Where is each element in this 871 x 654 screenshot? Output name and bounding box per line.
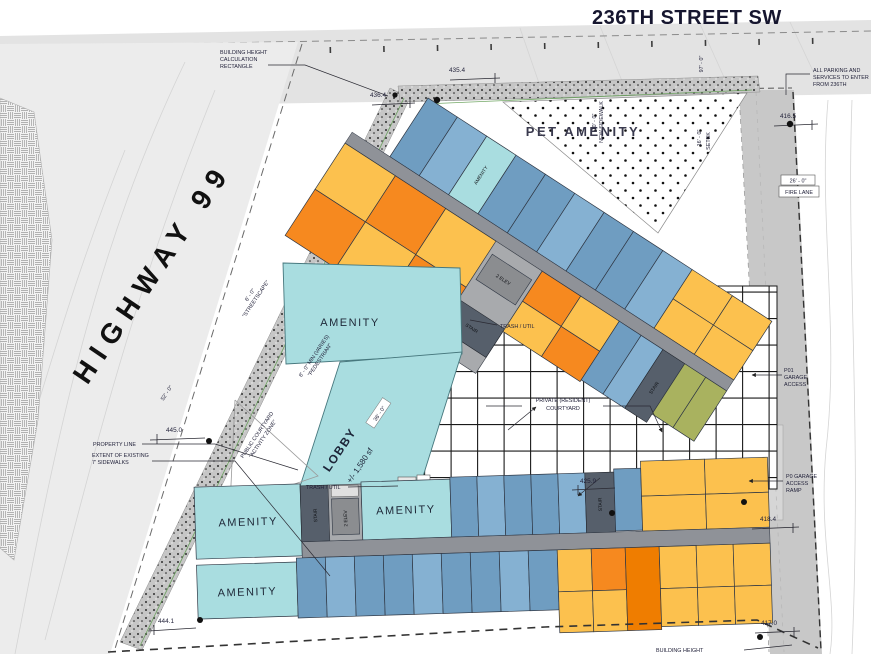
svg-text:FROM 236TH: FROM 236TH <box>813 82 847 88</box>
unit <box>450 476 479 537</box>
amenity-mid-area <box>283 263 462 364</box>
svg-text:EXTENT OF EXISTING: EXTENT OF EXISTING <box>92 453 149 459</box>
svg-text:SERVICES TO ENTER: SERVICES TO ENTER <box>813 75 869 81</box>
unit <box>625 547 662 631</box>
svg-text:BUILDING HEIGHT: BUILDING HEIGHT <box>656 648 704 654</box>
svg-text:7' SIDEWALKS: 7' SIDEWALKS <box>92 460 129 466</box>
unit <box>696 544 734 587</box>
street-title: 236TH STREET SW <box>592 7 782 29</box>
svg-text:PRIVATE (RESIDENT): PRIVATE (RESIDENT) <box>536 398 591 404</box>
dim-setback: 16' - 0" <box>697 130 703 147</box>
svg-text:436.4: 436.4 <box>370 92 386 99</box>
unit <box>531 474 560 535</box>
unit <box>706 492 770 529</box>
svg-text:BUILDING HEIGHT: BUILDING HEIGHT <box>220 50 268 56</box>
unit <box>441 553 472 614</box>
amenity-label: AMENITY <box>320 317 379 329</box>
svg-text:TRASH / UTIL: TRASH / UTIL <box>306 485 340 491</box>
svg-text:RAMP: RAMP <box>786 488 802 494</box>
svg-text:P0 GARAGE: P0 GARAGE <box>786 474 818 480</box>
svg-text:417.0: 417.0 <box>761 620 777 627</box>
svg-text:444.1: 444.1 <box>158 618 174 625</box>
site-plan-page: AMENITY 2 ELEV STAIR STAIR <box>0 0 871 654</box>
amenity-label: AMENITY <box>217 586 277 600</box>
unit <box>697 586 735 625</box>
svg-text:PROPERTY LINE: PROPERTY LINE <box>93 442 136 448</box>
unit <box>296 557 327 618</box>
svg-text:418.4: 418.4 <box>760 516 776 523</box>
stair-label: STAIR <box>313 508 319 522</box>
svg-text:RECTANGLE: RECTANGLE <box>220 64 253 70</box>
svg-text:26' - 0": 26' - 0" <box>790 179 807 185</box>
svg-text:416.5: 416.5 <box>780 113 796 120</box>
unit <box>477 475 506 536</box>
unit <box>733 543 771 586</box>
unit <box>734 585 772 624</box>
site-plan-drawing: AMENITY 2 ELEV STAIR STAIR <box>0 0 871 654</box>
svg-text:GARAGE: GARAGE <box>784 375 807 381</box>
svg-text:COURTYARD: COURTYARD <box>546 406 580 412</box>
unit <box>504 475 533 536</box>
svg-text:425.9: 425.9 <box>580 478 596 485</box>
unit <box>557 549 592 592</box>
unit <box>660 587 698 626</box>
dim-setback-tag: SETBK <box>706 132 712 150</box>
unit <box>499 551 530 612</box>
svg-text:FIRE LANE: FIRE LANE <box>785 190 813 196</box>
unit <box>383 554 414 615</box>
unit <box>325 556 356 617</box>
elev-label: 2 ELEV <box>343 509 350 526</box>
svg-text:NEW SIDEWALK: NEW SIDEWALK <box>599 101 605 143</box>
unit <box>354 555 385 616</box>
svg-text:CALCULATION: CALCULATION <box>220 57 257 63</box>
dim-97: 97' - 0" <box>699 56 705 73</box>
unit <box>614 468 643 531</box>
unit <box>591 548 626 591</box>
stair-label: STAIR <box>598 497 604 511</box>
svg-text:TRASH / UTIL: TRASH / UTIL <box>500 324 534 330</box>
unit <box>642 494 707 531</box>
amenity-label: AMENITY <box>376 504 436 518</box>
svg-text:445.0: 445.0 <box>166 427 182 434</box>
svg-text:435.4: 435.4 <box>449 67 465 74</box>
amenity-label: AMENITY <box>218 516 278 530</box>
svg-text:P01: P01 <box>784 368 794 374</box>
pet-amenity-label: PET AMENITY <box>526 124 640 139</box>
fire-lane-tag: 26' - 0" FIRE LANE <box>779 175 819 197</box>
unit <box>659 545 697 588</box>
unit <box>640 459 705 496</box>
unit <box>704 457 768 494</box>
svg-text:ACCESS: ACCESS <box>786 481 809 487</box>
svg-text:ACCESS: ACCESS <box>784 382 807 388</box>
svg-text:10' - 0": 10' - 0" <box>592 114 598 131</box>
unit <box>528 550 559 611</box>
unit <box>412 553 443 614</box>
svg-text:ALL PARKING AND: ALL PARKING AND <box>813 68 860 74</box>
unit <box>470 552 501 613</box>
